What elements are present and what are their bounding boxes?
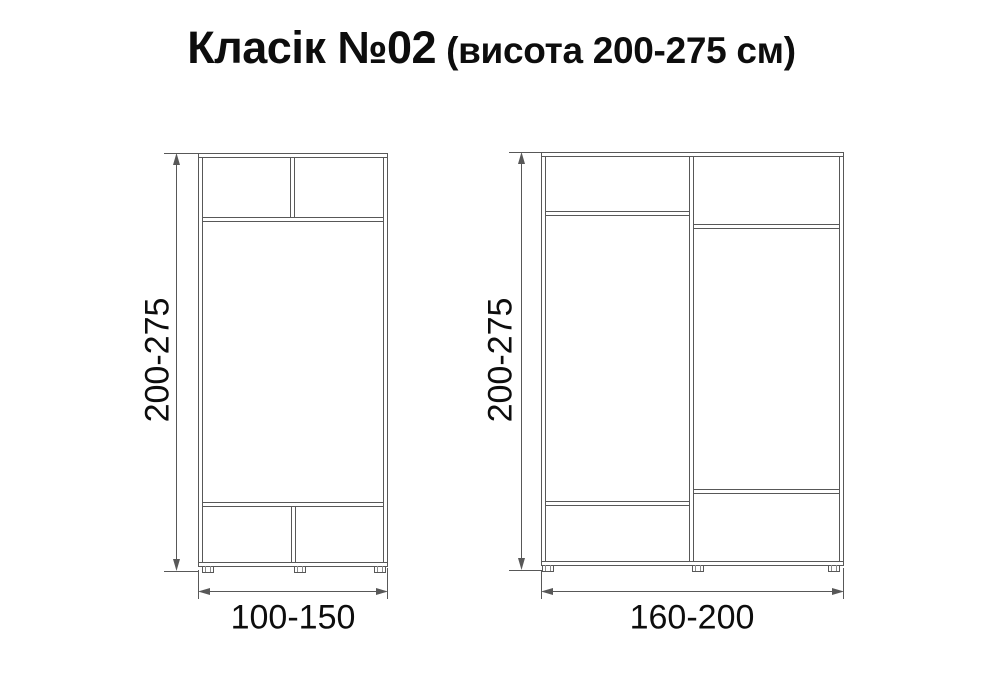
diagram-canvas: Класік №02(висота 200-275 см) [0,0,983,700]
title-sub: (висота 200-275 см) [446,30,796,71]
w1-arrow-left [198,588,210,595]
height-label-large: 200-275 [482,298,521,423]
w1-arrow-down [173,559,180,571]
w1-arrow-right [376,588,388,595]
height-label-small: 200-275 [139,298,178,423]
wardrobe-large-drawing [541,152,844,566]
w1-arrow-up [173,153,180,165]
width-label-small: 100-150 [231,599,356,638]
w1-foot-center [294,566,306,573]
w2-right-top-shelf [693,224,840,229]
w2-foot-right [828,565,840,572]
w2-foot-center [692,565,704,572]
w1-top-divider [290,157,295,218]
w2-arrow-right [832,588,844,595]
w2-left-top-shelf [545,211,690,216]
w2-arrow-down [518,558,525,570]
w1-foot-left [202,566,214,573]
page-title: Класік №02(висота 200-275 см) [0,22,983,74]
w2-arrow-left [541,588,553,595]
w2-left-bottom-shelf [545,501,690,506]
w2-right-wall [839,152,844,566]
w2-arrow-up [518,152,525,164]
w1-bottom-divider [291,506,296,563]
wardrobe-small-drawing [198,153,388,567]
w1-foot-right [374,566,386,573]
width-label-large: 160-200 [630,599,755,638]
w2-foot-left [542,565,554,572]
w2-right-bottom-shelf [693,489,840,494]
title-main: Класік №02 [187,22,436,73]
